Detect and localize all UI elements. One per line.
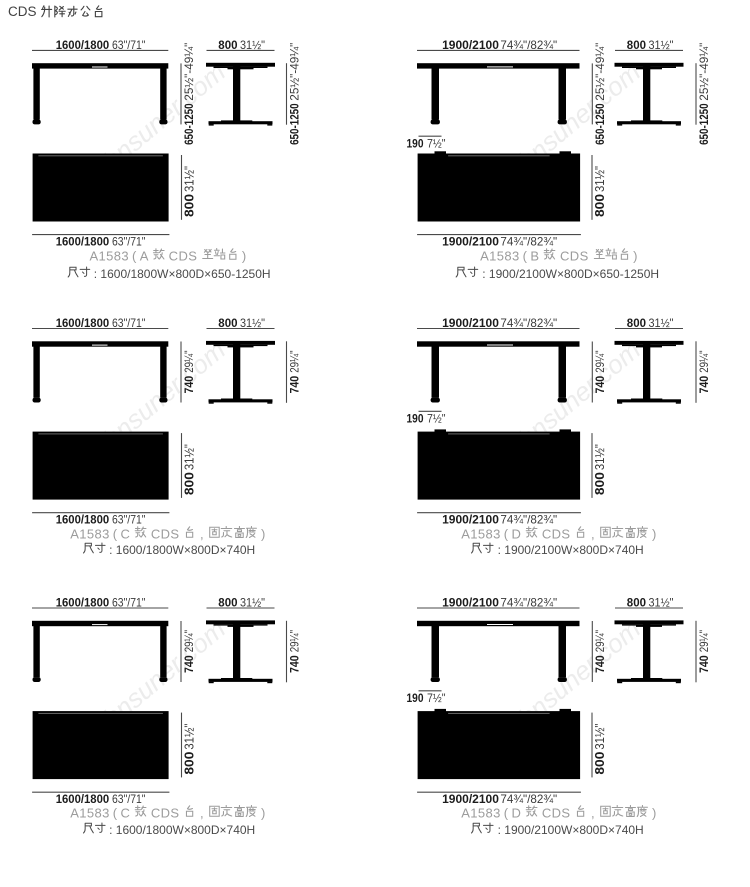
svg-text:800: 800 xyxy=(181,472,196,495)
svg-text:25½"-49¼": 25½"-49¼" xyxy=(593,43,607,101)
svg-text:190: 190 xyxy=(407,136,424,150)
svg-text:25½"-49¼": 25½"-49¼" xyxy=(287,43,301,101)
svg-text:800: 800 xyxy=(592,194,607,217)
svg-text:800: 800 xyxy=(181,194,196,217)
svg-text:740: 740 xyxy=(287,655,301,673)
svg-text:29¼": 29¼" xyxy=(287,350,301,372)
svg-text:31½": 31½" xyxy=(592,723,607,749)
svg-text:650-1250: 650-1250 xyxy=(287,103,301,145)
svg-text:740: 740 xyxy=(287,376,301,394)
svg-text:74¾"/82¾": 74¾"/82¾" xyxy=(500,513,557,527)
svg-text:740: 740 xyxy=(182,655,196,673)
svg-text:740: 740 xyxy=(182,376,196,394)
svg-text:31½": 31½" xyxy=(592,166,607,192)
svg-text:1600/1800: 1600/1800 xyxy=(56,513,110,527)
svg-text:31½": 31½" xyxy=(181,166,196,192)
svg-text:1900/2100: 1900/2100 xyxy=(442,235,499,249)
svg-text:7½": 7½" xyxy=(427,411,446,425)
svg-text:1600/1800: 1600/1800 xyxy=(56,235,110,249)
svg-text:1600/1800: 1600/1800 xyxy=(56,792,110,806)
svg-text:29¼": 29¼" xyxy=(287,630,301,652)
svg-text:63"/71": 63"/71" xyxy=(112,513,146,527)
svg-text:740: 740 xyxy=(697,376,711,394)
svg-text:740: 740 xyxy=(593,376,607,394)
svg-text:1900/2100: 1900/2100 xyxy=(442,792,499,806)
svg-text:29¼": 29¼" xyxy=(697,630,711,652)
svg-text:31½": 31½" xyxy=(592,444,607,470)
svg-text:650-1250: 650-1250 xyxy=(593,103,607,145)
svg-text:650-1250: 650-1250 xyxy=(182,103,196,145)
svg-text:63"/71": 63"/71" xyxy=(112,235,146,249)
svg-text:740: 740 xyxy=(697,655,711,673)
svg-text:800: 800 xyxy=(592,752,607,775)
svg-text:190: 190 xyxy=(407,411,424,425)
svg-text:190: 190 xyxy=(407,691,424,705)
svg-text:7½": 7½" xyxy=(427,136,446,150)
svg-text:7½": 7½" xyxy=(427,691,446,705)
svg-text:29¼": 29¼" xyxy=(697,350,711,372)
svg-text:25½"-49¼": 25½"-49¼" xyxy=(697,43,711,101)
svg-text:29¼": 29¼" xyxy=(182,350,196,372)
svg-text:29¼": 29¼" xyxy=(593,350,607,372)
svg-text:74¾"/82¾": 74¾"/82¾" xyxy=(500,235,557,249)
svg-text:25½"-49¼": 25½"-49¼" xyxy=(182,43,196,101)
svg-text:29¼": 29¼" xyxy=(593,630,607,652)
svg-text:74¾"/82¾": 74¾"/82¾" xyxy=(500,792,557,806)
svg-text:31½": 31½" xyxy=(181,723,196,749)
svg-text:740: 740 xyxy=(593,655,607,673)
svg-text:800: 800 xyxy=(592,472,607,495)
svg-text:800: 800 xyxy=(181,752,196,775)
svg-text:29¼": 29¼" xyxy=(182,630,196,652)
svg-text:650-1250: 650-1250 xyxy=(697,103,711,145)
svg-text:31½": 31½" xyxy=(181,444,196,470)
svg-text:63"/71": 63"/71" xyxy=(112,792,146,806)
svg-text:1900/2100: 1900/2100 xyxy=(442,513,499,527)
